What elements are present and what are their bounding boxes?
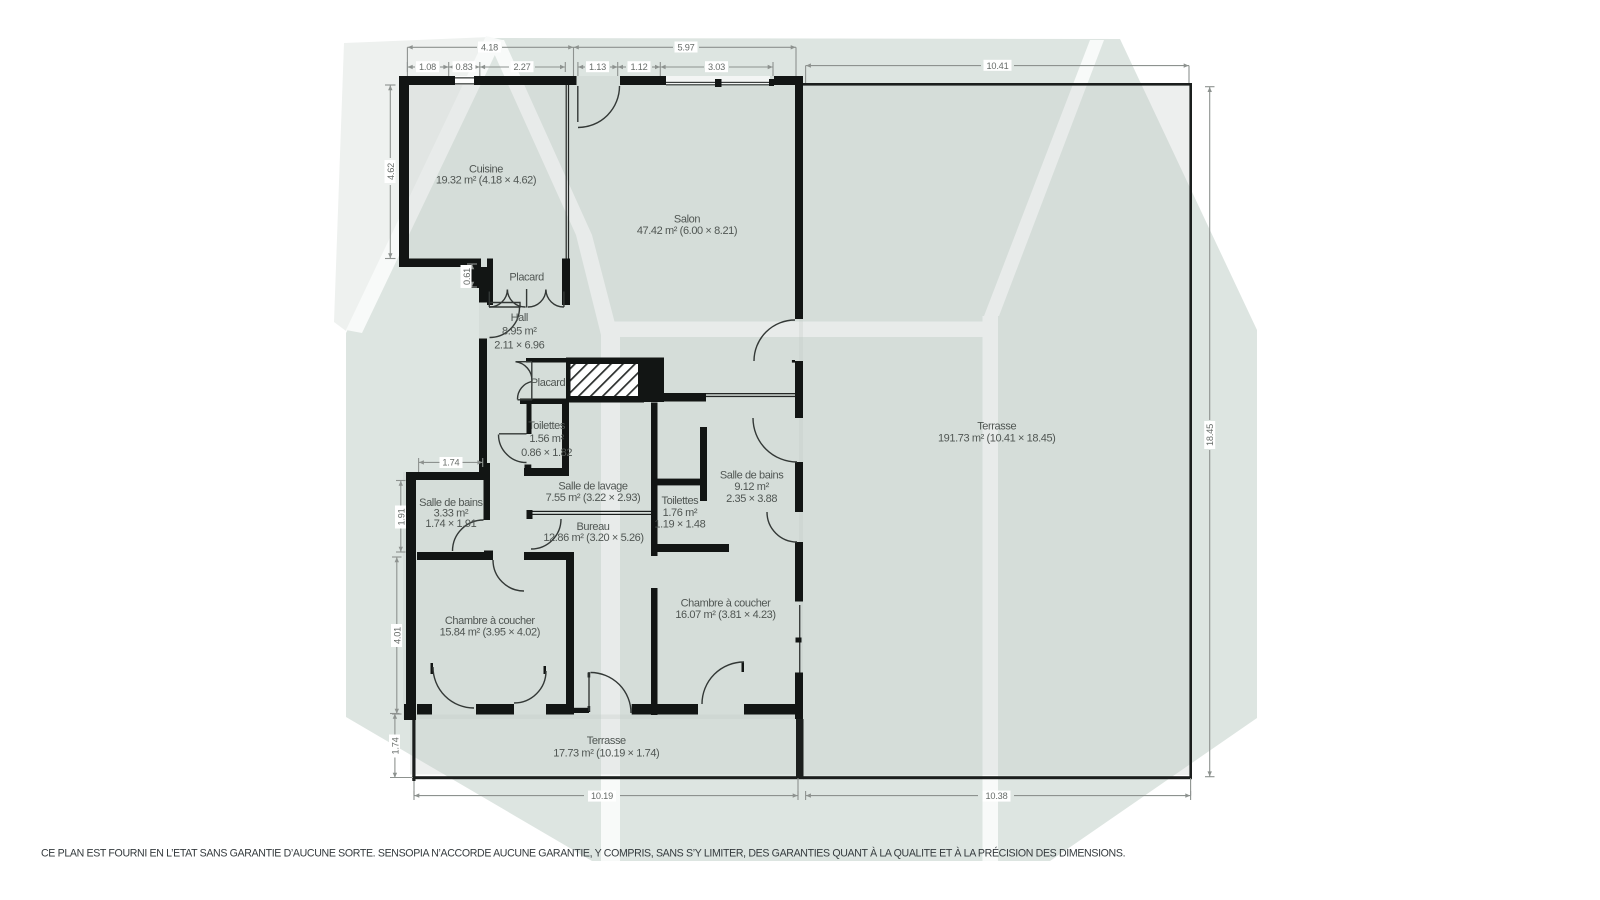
svg-text:Chambre à coucher: Chambre à coucher	[681, 598, 772, 610]
svg-text:17.73 m² (10.19 × 1.74): 17.73 m² (10.19 × 1.74)	[553, 748, 659, 760]
svg-text:Chambre à coucher: Chambre à coucher	[445, 615, 536, 627]
svg-text:Hall: Hall	[511, 312, 528, 324]
svg-text:15.84 m² (3.95 × 4.02): 15.84 m² (3.95 × 4.02)	[440, 627, 540, 639]
svg-text:Placard: Placard	[531, 377, 566, 389]
svg-text:7.55 m² (3.22 × 2.93): 7.55 m² (3.22 × 2.93)	[546, 492, 641, 504]
svg-text:Cuisine: Cuisine	[469, 163, 503, 175]
svg-text:0.61: 0.61	[462, 268, 472, 285]
svg-text:10.38: 10.38	[986, 791, 1008, 801]
svg-text:9.12 m²: 9.12 m²	[734, 481, 769, 493]
svg-text:5.97: 5.97	[677, 43, 694, 53]
svg-text:4.18: 4.18	[481, 43, 498, 53]
svg-text:1.74: 1.74	[442, 458, 459, 468]
svg-text:18.45: 18.45	[1205, 424, 1215, 446]
svg-text:12.86 m² (3.20 × 5.26): 12.86 m² (3.20 × 5.26)	[543, 532, 643, 544]
svg-text:10.19: 10.19	[591, 791, 613, 801]
svg-text:4.01: 4.01	[392, 627, 402, 644]
svg-text:Salon: Salon	[674, 214, 700, 226]
svg-text:1.08: 1.08	[419, 62, 436, 72]
svg-text:191.73 m² (10.41 × 18.45): 191.73 m² (10.41 × 18.45)	[938, 433, 1056, 445]
svg-text:Toilettes: Toilettes	[528, 420, 566, 432]
svg-text:1.13: 1.13	[589, 62, 606, 72]
svg-text:1.74: 1.74	[390, 737, 400, 754]
svg-text:10.41: 10.41	[987, 61, 1009, 71]
svg-text:4.62: 4.62	[386, 163, 396, 180]
svg-text:Terrasse: Terrasse	[587, 735, 626, 747]
svg-text:Placard: Placard	[509, 272, 544, 284]
svg-text:0.86 × 1.82: 0.86 × 1.82	[521, 447, 572, 459]
svg-text:CE PLAN EST FOURNI EN L’ETAT S: CE PLAN EST FOURNI EN L’ETAT SANS GARANT…	[41, 847, 1125, 860]
svg-text:2.11 × 6.96: 2.11 × 6.96	[494, 340, 544, 352]
svg-text:1.74 × 1.91: 1.74 × 1.91	[425, 518, 476, 530]
svg-text:Terrasse: Terrasse	[977, 421, 1016, 433]
svg-text:Toilettes: Toilettes	[662, 495, 700, 507]
svg-text:1.56 m²: 1.56 m²	[529, 433, 564, 445]
svg-text:47.42 m² (6.00 × 8.21): 47.42 m² (6.00 × 8.21)	[637, 225, 737, 237]
svg-text:Salle de lavage: Salle de lavage	[558, 481, 628, 493]
svg-text:Salle de bains: Salle de bains	[720, 470, 784, 482]
svg-text:2.35 × 3.88: 2.35 × 3.88	[726, 493, 777, 505]
svg-text:8.95 m²: 8.95 m²	[502, 326, 537, 338]
svg-text:3.03: 3.03	[708, 62, 725, 72]
svg-text:19.32 m² (4.18 × 4.62): 19.32 m² (4.18 × 4.62)	[436, 175, 536, 187]
svg-text:1.19 × 1.48: 1.19 × 1.48	[654, 519, 705, 531]
svg-text:16.07 m² (3.81 × 4.23): 16.07 m² (3.81 × 4.23)	[675, 609, 775, 621]
svg-text:1.91: 1.91	[396, 508, 406, 525]
svg-text:1.76 m²: 1.76 m²	[663, 507, 698, 519]
svg-text:0.83: 0.83	[455, 62, 472, 72]
svg-text:2.27: 2.27	[513, 62, 530, 72]
svg-text:1.12: 1.12	[630, 62, 647, 72]
